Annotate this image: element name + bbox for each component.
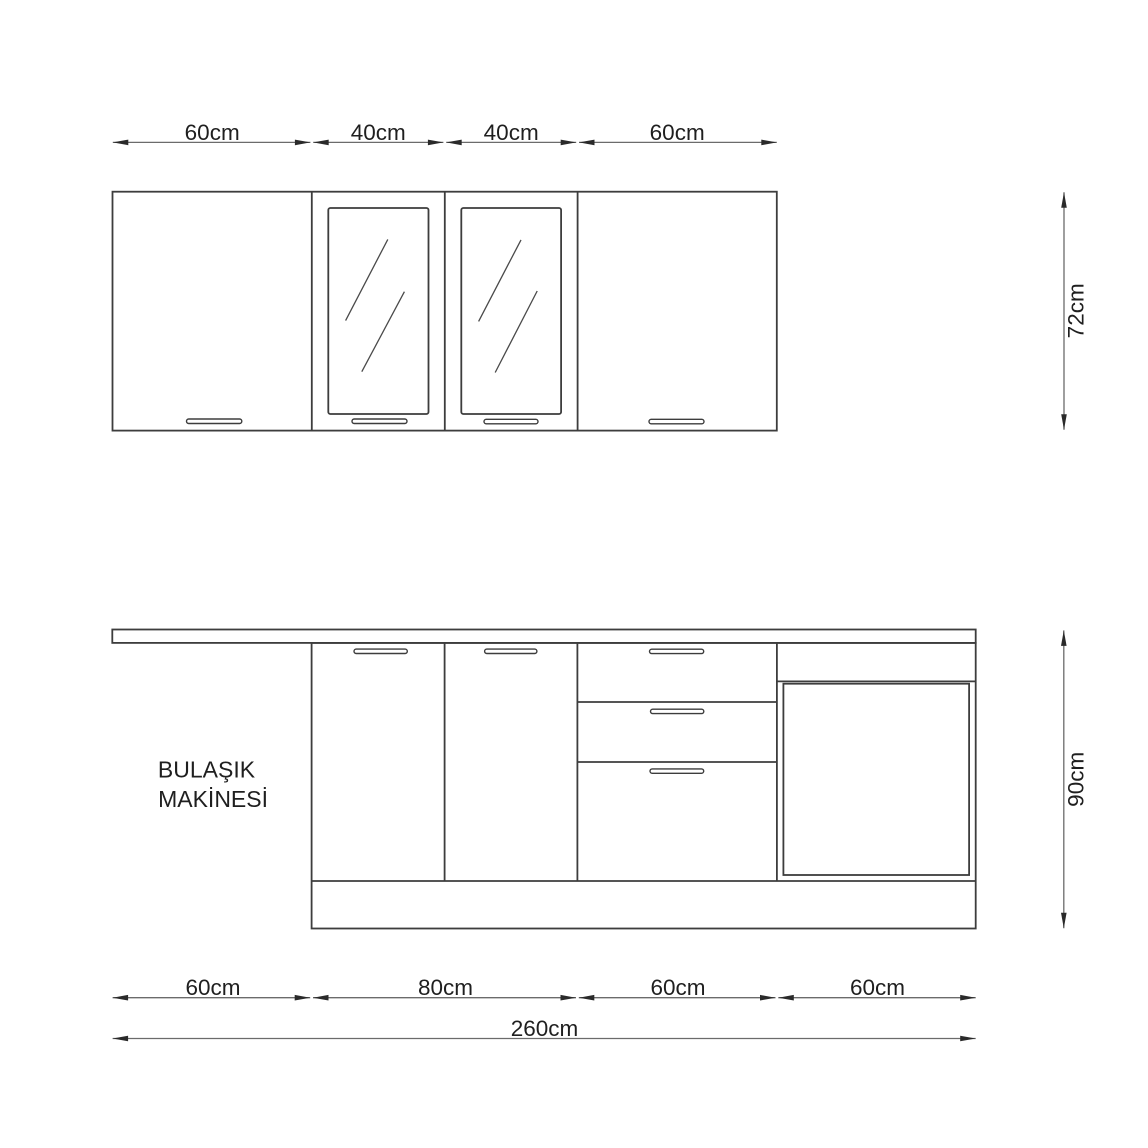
svg-text:72cm: 72cm <box>1064 283 1089 338</box>
svg-text:60cm: 60cm <box>650 120 705 145</box>
svg-text:260cm: 260cm <box>511 1016 579 1041</box>
svg-text:60cm: 60cm <box>185 120 240 145</box>
svg-text:BULAŞIK: BULAŞIK <box>158 757 256 783</box>
svg-text:80cm: 80cm <box>418 975 473 1000</box>
svg-text:60cm: 60cm <box>650 975 705 1000</box>
svg-text:60cm: 60cm <box>185 975 240 1000</box>
svg-text:MAKİNESİ: MAKİNESİ <box>158 786 268 812</box>
svg-text:90cm: 90cm <box>1064 752 1089 807</box>
svg-text:60cm: 60cm <box>850 975 905 1000</box>
svg-text:40cm: 40cm <box>484 120 539 145</box>
svg-text:40cm: 40cm <box>351 120 406 145</box>
